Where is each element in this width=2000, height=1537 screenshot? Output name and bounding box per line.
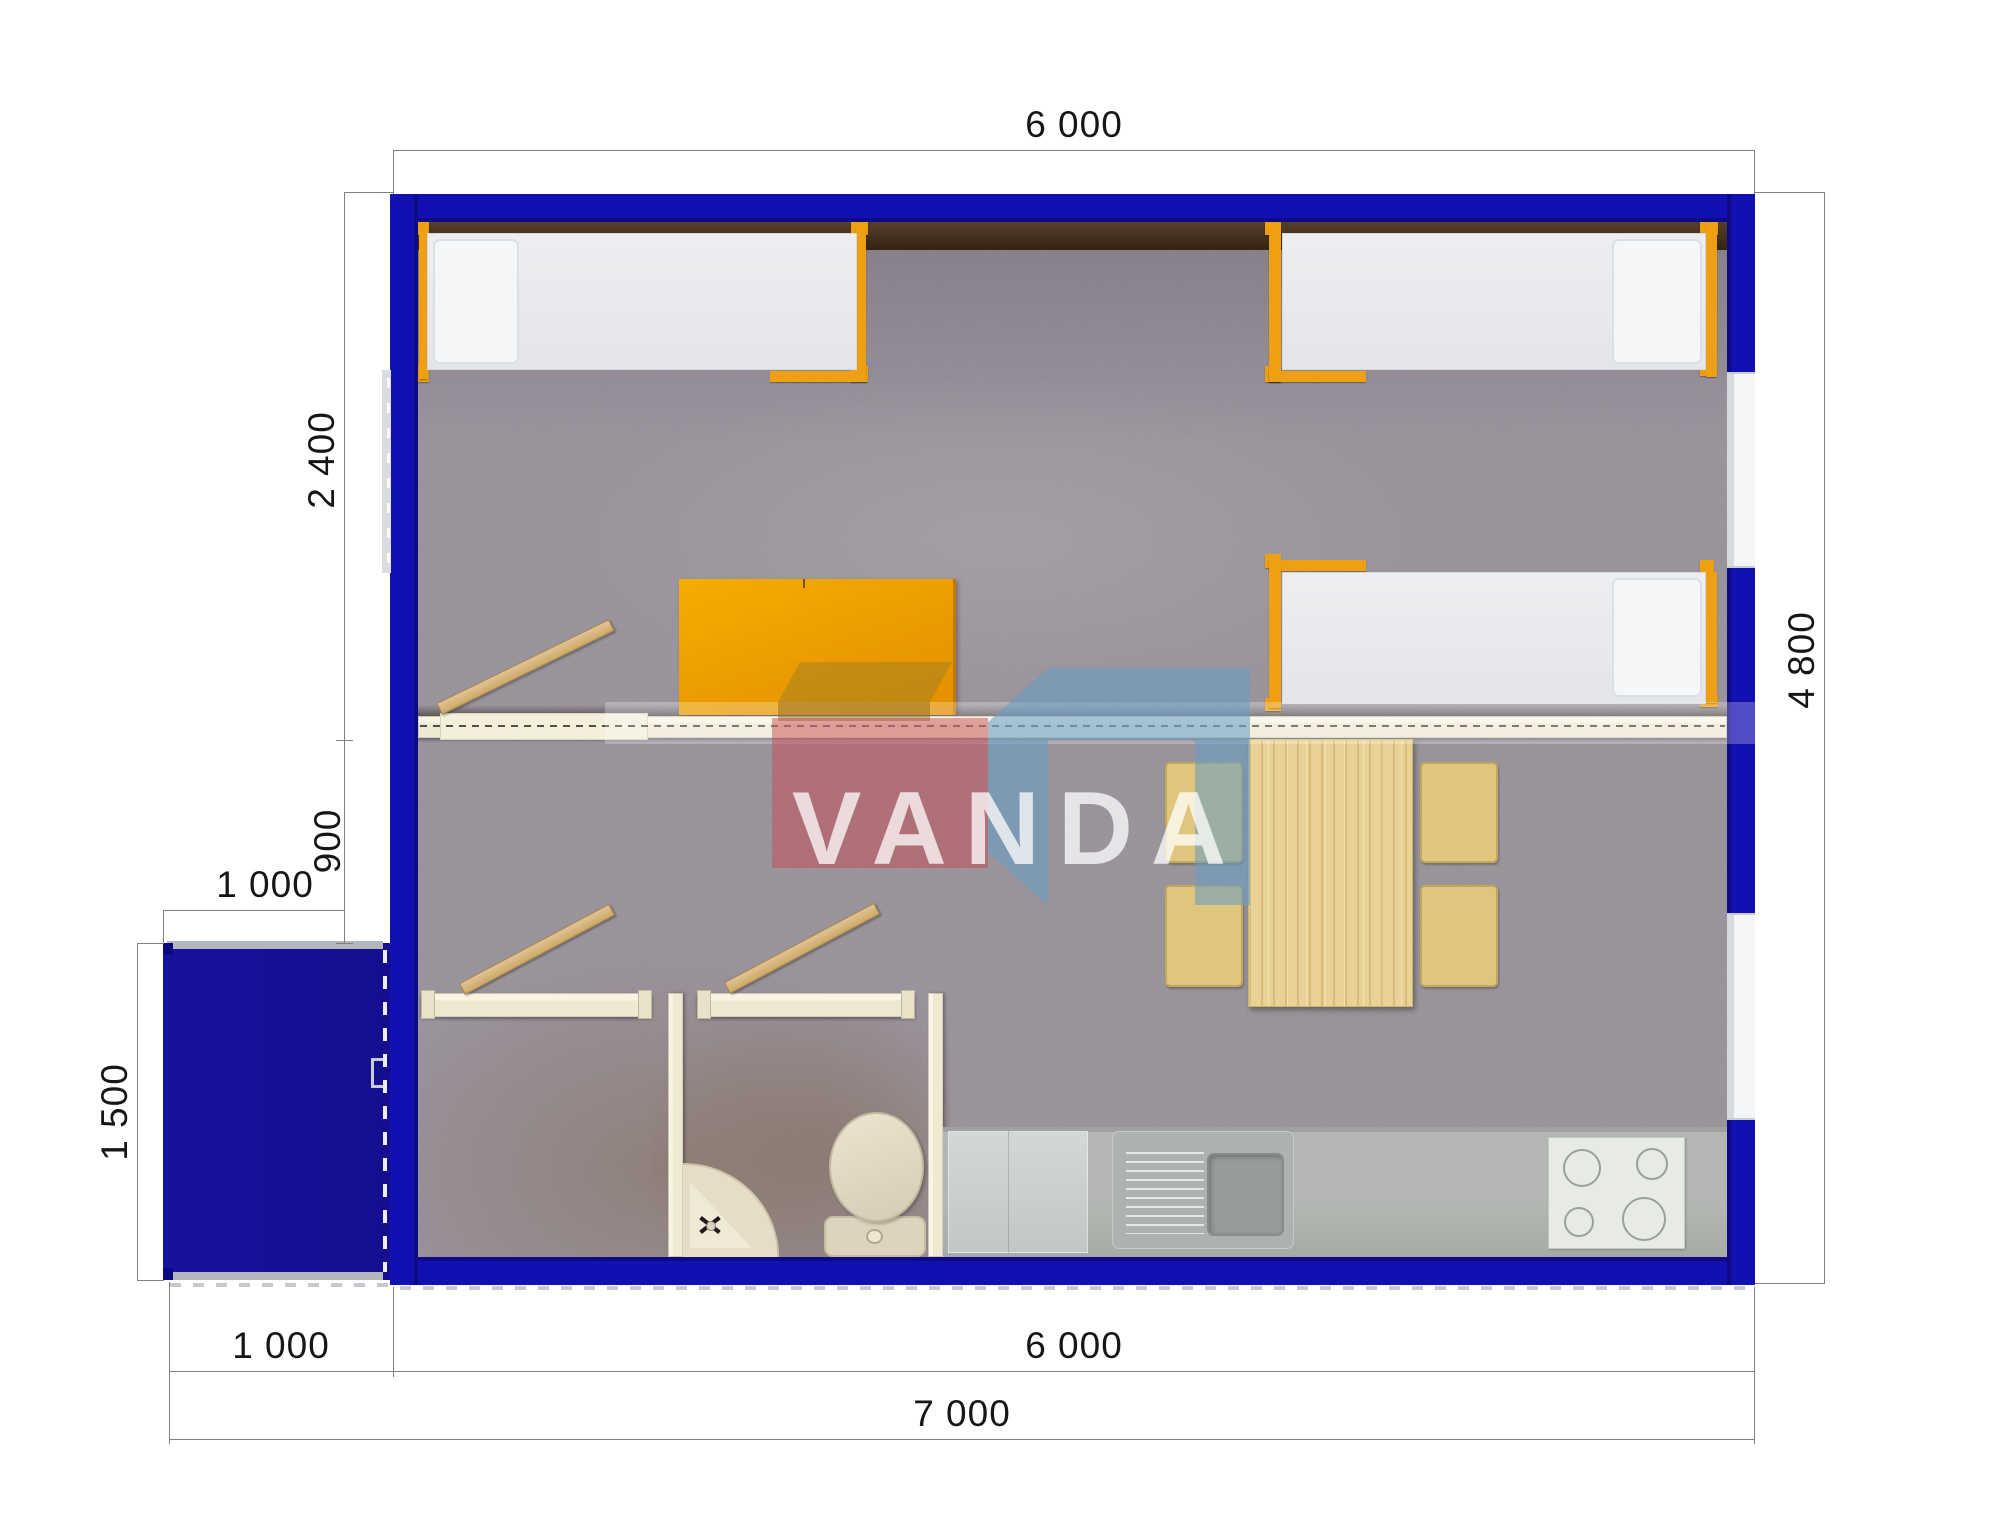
door-jamb: [697, 990, 711, 1019]
porch-corner-post: [163, 943, 173, 955]
wall-left: [390, 194, 418, 1285]
door-jamb: [901, 990, 915, 1019]
stove-burner: [1636, 1148, 1668, 1180]
entry-porch: [163, 943, 390, 1280]
dim-annex-width-label: 1 000: [216, 864, 314, 906]
dim-tick: [137, 943, 164, 944]
dim-annex-width-line: [163, 910, 345, 911]
dim-right-height-label: 4 800: [1781, 611, 1823, 709]
window-right-lower: [1727, 913, 1755, 1120]
sink-drainboard-ribs: [1126, 1152, 1204, 1234]
dim-tick: [336, 943, 353, 944]
bed-pillow: [1612, 578, 1702, 697]
bed-frame-post: [1700, 560, 1714, 572]
dim-bottom-building-width-label: 6 000: [1025, 1325, 1123, 1367]
door-jamb: [638, 990, 652, 1019]
stove-burner: [1564, 1207, 1594, 1237]
logo-olive-box-top: [778, 662, 952, 702]
dim-extension: [1754, 1287, 1755, 1444]
bed-frame-rail-right: [856, 227, 866, 374]
cladding-dashes-annex-bottom: [170, 1283, 388, 1287]
orange-cabinet-seam: [803, 579, 805, 588]
dim-right-height-line: [1824, 192, 1825, 1283]
dim-bottom-line-1: [169, 1371, 1755, 1372]
kitchen-fridge-seam: [1008, 1131, 1009, 1253]
bed-pillow: [433, 239, 519, 364]
entry-door-dashed-line: [383, 950, 387, 1272]
stove-burner: [1563, 1149, 1601, 1187]
vanda-watermark: VANDA: [600, 640, 1300, 920]
bed-frame-footboard: [1269, 371, 1366, 382]
window-right-upper: [1727, 372, 1755, 568]
door-handle-icon: [371, 1058, 383, 1088]
chair: [1420, 885, 1498, 987]
bathroom-wall-vertical: [668, 993, 683, 1257]
cladding-dashes-left: [387, 228, 390, 940]
wall-top: [390, 194, 1755, 222]
bed-frame-rail-right: [1706, 227, 1717, 377]
dim-room-depth-label: 2 400: [301, 411, 343, 509]
porch-step-bottom: [167, 1272, 383, 1280]
dim-bottom-annex-width-label: 1 000: [232, 1325, 330, 1367]
dim-extension: [1755, 1283, 1825, 1284]
kitchen-fridge-top: [948, 1131, 1088, 1253]
dim-extension: [393, 1287, 394, 1377]
sink-basin: [1207, 1153, 1284, 1236]
bathroom-wall-horizontal-left: [421, 993, 652, 1017]
dim-top-width-line: [393, 150, 1755, 151]
bed-frame-rail-right: [1706, 572, 1717, 703]
bed-frame-footboard: [770, 371, 866, 382]
floor-plan-canvas: VANDA 6 000 4 800 2 400 900 1 000 1 500 …: [0, 0, 2000, 1537]
chair: [1420, 762, 1498, 863]
watermark-text: VANDA: [792, 771, 1244, 887]
stove-burner: [1622, 1197, 1666, 1241]
bed-frame-headboard: [1269, 560, 1366, 571]
dim-extension: [169, 1282, 170, 1444]
dim-annex-height-line: [137, 943, 138, 1280]
dim-total-width-label: 7 000: [913, 1393, 1011, 1435]
porch-corner-post: [163, 1268, 173, 1280]
window-sill: [1727, 374, 1734, 566]
toilet-flush-button: [866, 1229, 883, 1244]
dim-top-width-label: 6 000: [1025, 104, 1123, 146]
wall-bottom: [390, 1257, 1755, 1285]
dim-extension: [163, 910, 164, 943]
dim-extension: [393, 150, 394, 194]
toilet-bowl-lid: [829, 1112, 924, 1222]
dim-extension: [1755, 192, 1825, 193]
logo-blue-top: [1048, 668, 1250, 740]
door-jamb: [421, 990, 435, 1019]
faucet-hub: [706, 1221, 716, 1231]
cladding-dashes-bottom: [400, 1286, 1752, 1290]
dim-tick: [137, 1280, 164, 1281]
dim-tick: [336, 740, 353, 741]
dim-extension: [1754, 150, 1755, 194]
bed-pillow: [1612, 239, 1702, 364]
window-sill: [1727, 915, 1734, 1118]
bathroom-wall-right: [928, 993, 943, 1257]
bed-frame-rail-left: [1269, 227, 1281, 382]
faucet-cross-icon: [696, 1211, 724, 1239]
dim-annex-height-label: 1 500: [94, 1063, 136, 1161]
dim-extension: [344, 192, 393, 193]
dim-bottom-line-2: [169, 1439, 1755, 1440]
bathroom-wall-horizontal-right: [697, 993, 915, 1017]
